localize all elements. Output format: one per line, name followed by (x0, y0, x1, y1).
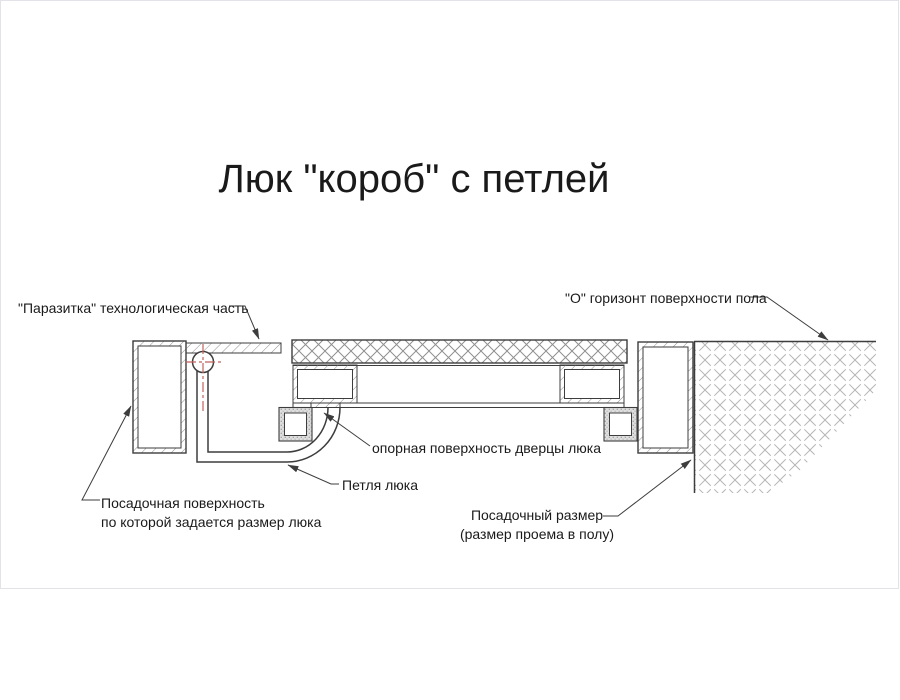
door-tile-finish (292, 340, 627, 363)
door-bottom-weld (311, 403, 340, 408)
label-seating-surface: Посадочная поверхность по которой задает… (101, 494, 321, 532)
leader-opornaya (324, 413, 370, 446)
support-pad-left (279, 408, 312, 442)
label-hinge: Петля люка (342, 476, 418, 495)
leader-petlya (288, 465, 339, 484)
technical-drawing (0, 0, 900, 700)
drawing-title: Люк "короб" с петлей (0, 157, 828, 202)
label-seating-size-line2: (размер проема в полу) (412, 525, 662, 544)
support-pad-right (604, 408, 637, 442)
door-end-profile-left (293, 365, 357, 403)
door-end-profile-right (560, 365, 624, 403)
frame-right-profile (638, 342, 693, 453)
hatch-door-leaf (292, 340, 627, 408)
label-parasitka: "Паразитка" технологическая часть (18, 299, 249, 318)
door-bottom-plate (293, 403, 624, 408)
leader-posadochnaya (82, 406, 131, 500)
label-seating-size: Посадочный размер (размер проема в полу) (412, 506, 662, 544)
label-seating-surface-line2: по которой задается размер люка (101, 513, 321, 532)
label-seating-surface-line1: Посадочная поверхность (101, 494, 321, 513)
label-seating-size-line1: Посадочный размер (412, 506, 662, 525)
floor-slab (694, 342, 876, 494)
diagram-page: Люк "короб" с петлей "Паразитка" техноло… (0, 0, 900, 700)
label-door-support-surface: опорная поверхность дверцы люка (372, 439, 601, 458)
frame-left-profile (133, 341, 186, 453)
label-floor-horizon: "О" горизонт поверхности пола (565, 289, 767, 308)
